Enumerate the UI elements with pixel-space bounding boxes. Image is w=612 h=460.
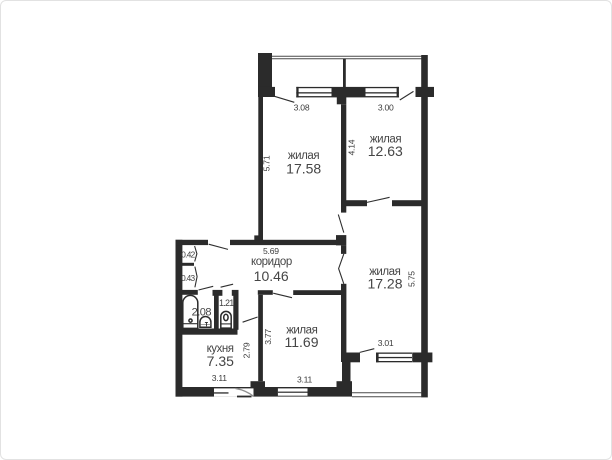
svg-text:5.71: 5.71 — [262, 155, 272, 171]
svg-text:3.08: 3.08 — [294, 102, 310, 112]
svg-text:3.01: 3.01 — [378, 338, 394, 348]
svg-text:5.75: 5.75 — [407, 271, 417, 287]
svg-text:7.35: 7.35 — [207, 353, 234, 369]
svg-text:10.46: 10.46 — [254, 268, 289, 284]
svg-text:17.28: 17.28 — [367, 275, 402, 291]
svg-text:11.69: 11.69 — [285, 334, 319, 350]
svg-text:коридор: коридор — [251, 256, 292, 268]
svg-text:17.58: 17.58 — [286, 161, 321, 177]
svg-text:5.69: 5.69 — [263, 246, 279, 256]
svg-text:2.79: 2.79 — [242, 342, 252, 358]
svg-text:3.00: 3.00 — [378, 102, 394, 112]
svg-text:3.11: 3.11 — [297, 374, 313, 384]
svg-text:0.43: 0.43 — [181, 273, 195, 283]
svg-text:1.21: 1.21 — [219, 298, 234, 308]
svg-text:3.11: 3.11 — [212, 373, 228, 383]
svg-text:2.08: 2.08 — [192, 307, 212, 319]
svg-text:3.77: 3.77 — [263, 329, 273, 345]
svg-text:0.42: 0.42 — [181, 249, 195, 259]
svg-text:12.63: 12.63 — [368, 143, 403, 159]
svg-text:4.14: 4.14 — [346, 139, 356, 155]
